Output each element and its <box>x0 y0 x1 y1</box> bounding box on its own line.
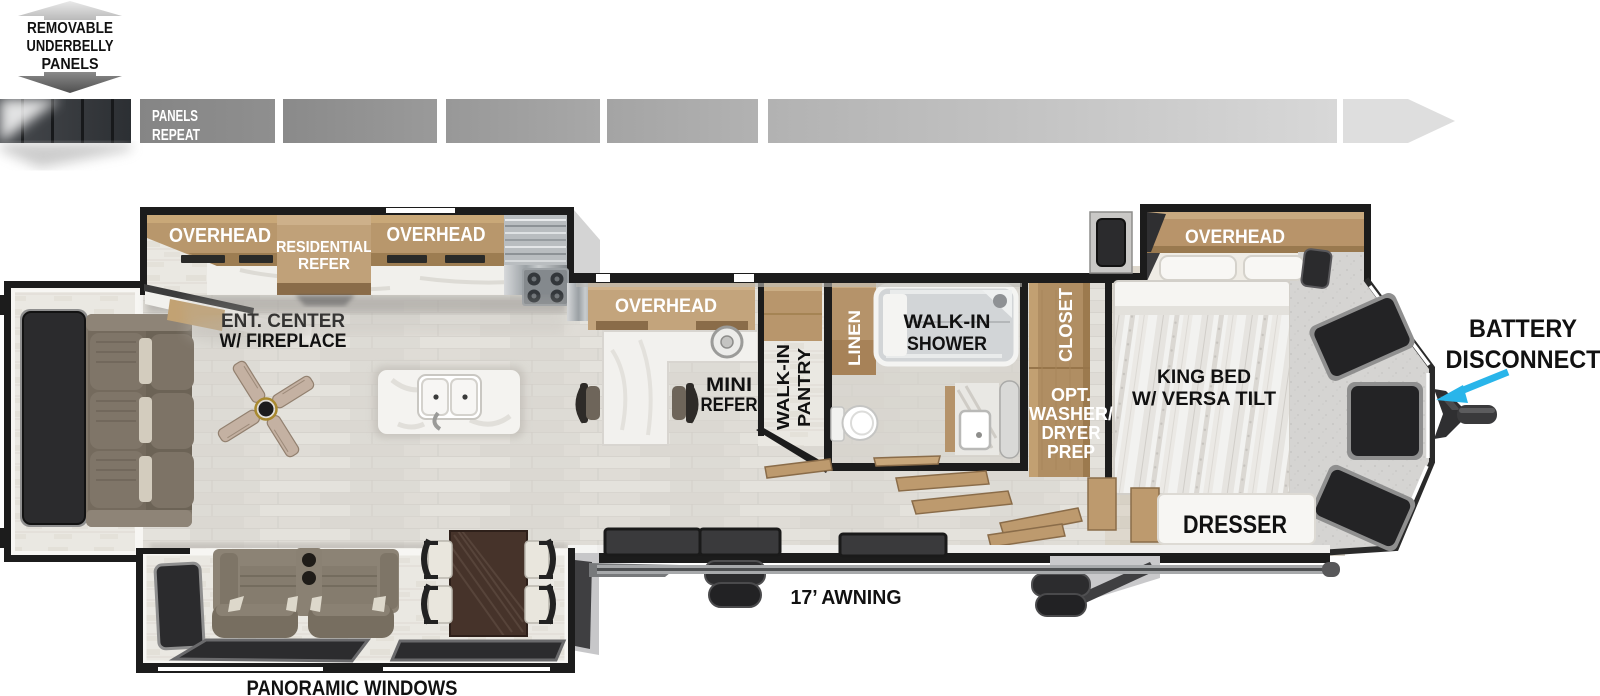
svg-text:LINEN: LINEN <box>845 310 864 366</box>
svg-text:REFER: REFER <box>298 256 350 273</box>
svg-text:OVERHEAD: OVERHEAD <box>1185 227 1285 248</box>
svg-text:W/ FIREPLACE: W/ FIREPLACE <box>220 331 347 352</box>
svg-text:BATTERY: BATTERY <box>1469 315 1577 343</box>
svg-text:PANORAMIC WINDOWS: PANORAMIC WINDOWS <box>247 677 458 696</box>
svg-text:OVERHEAD: OVERHEAD <box>615 296 717 317</box>
svg-text:REMOVABLE: REMOVABLE <box>27 20 113 37</box>
svg-text:PANELS: PANELS <box>152 108 198 125</box>
svg-text:WALK-IN: WALK-IN <box>773 344 793 430</box>
svg-text:DRYER: DRYER <box>1042 423 1101 443</box>
svg-text:OVERHEAD: OVERHEAD <box>169 225 271 247</box>
svg-text:W/ VERSA TILT: W/ VERSA TILT <box>1132 388 1276 410</box>
svg-text:KING BED: KING BED <box>1157 366 1251 388</box>
svg-text:DRESSER: DRESSER <box>1183 511 1287 539</box>
svg-text:PANTRY: PANTRY <box>794 348 814 427</box>
svg-text:REFER: REFER <box>701 395 758 416</box>
svg-text:PANELS: PANELS <box>42 56 99 73</box>
svg-text:OVERHEAD: OVERHEAD <box>387 224 486 246</box>
svg-text:UNDERBELLY: UNDERBELLY <box>27 38 114 55</box>
svg-text:OPT.: OPT. <box>1051 385 1091 405</box>
svg-text:REPEAT: REPEAT <box>152 127 200 144</box>
svg-text:17’ AWNING: 17’ AWNING <box>791 587 902 609</box>
svg-text:CLOSET: CLOSET <box>1056 288 1076 362</box>
svg-text:MINI: MINI <box>706 375 752 396</box>
svg-text:DISCONNECT: DISCONNECT <box>1446 346 1600 374</box>
svg-text:PREP: PREP <box>1047 442 1095 462</box>
svg-text:WASHER/: WASHER/ <box>1029 404 1113 424</box>
svg-text:SHOWER: SHOWER <box>907 333 987 355</box>
svg-text:WALK-IN: WALK-IN <box>904 311 991 333</box>
svg-text:RESIDENTIAL: RESIDENTIAL <box>276 239 372 256</box>
